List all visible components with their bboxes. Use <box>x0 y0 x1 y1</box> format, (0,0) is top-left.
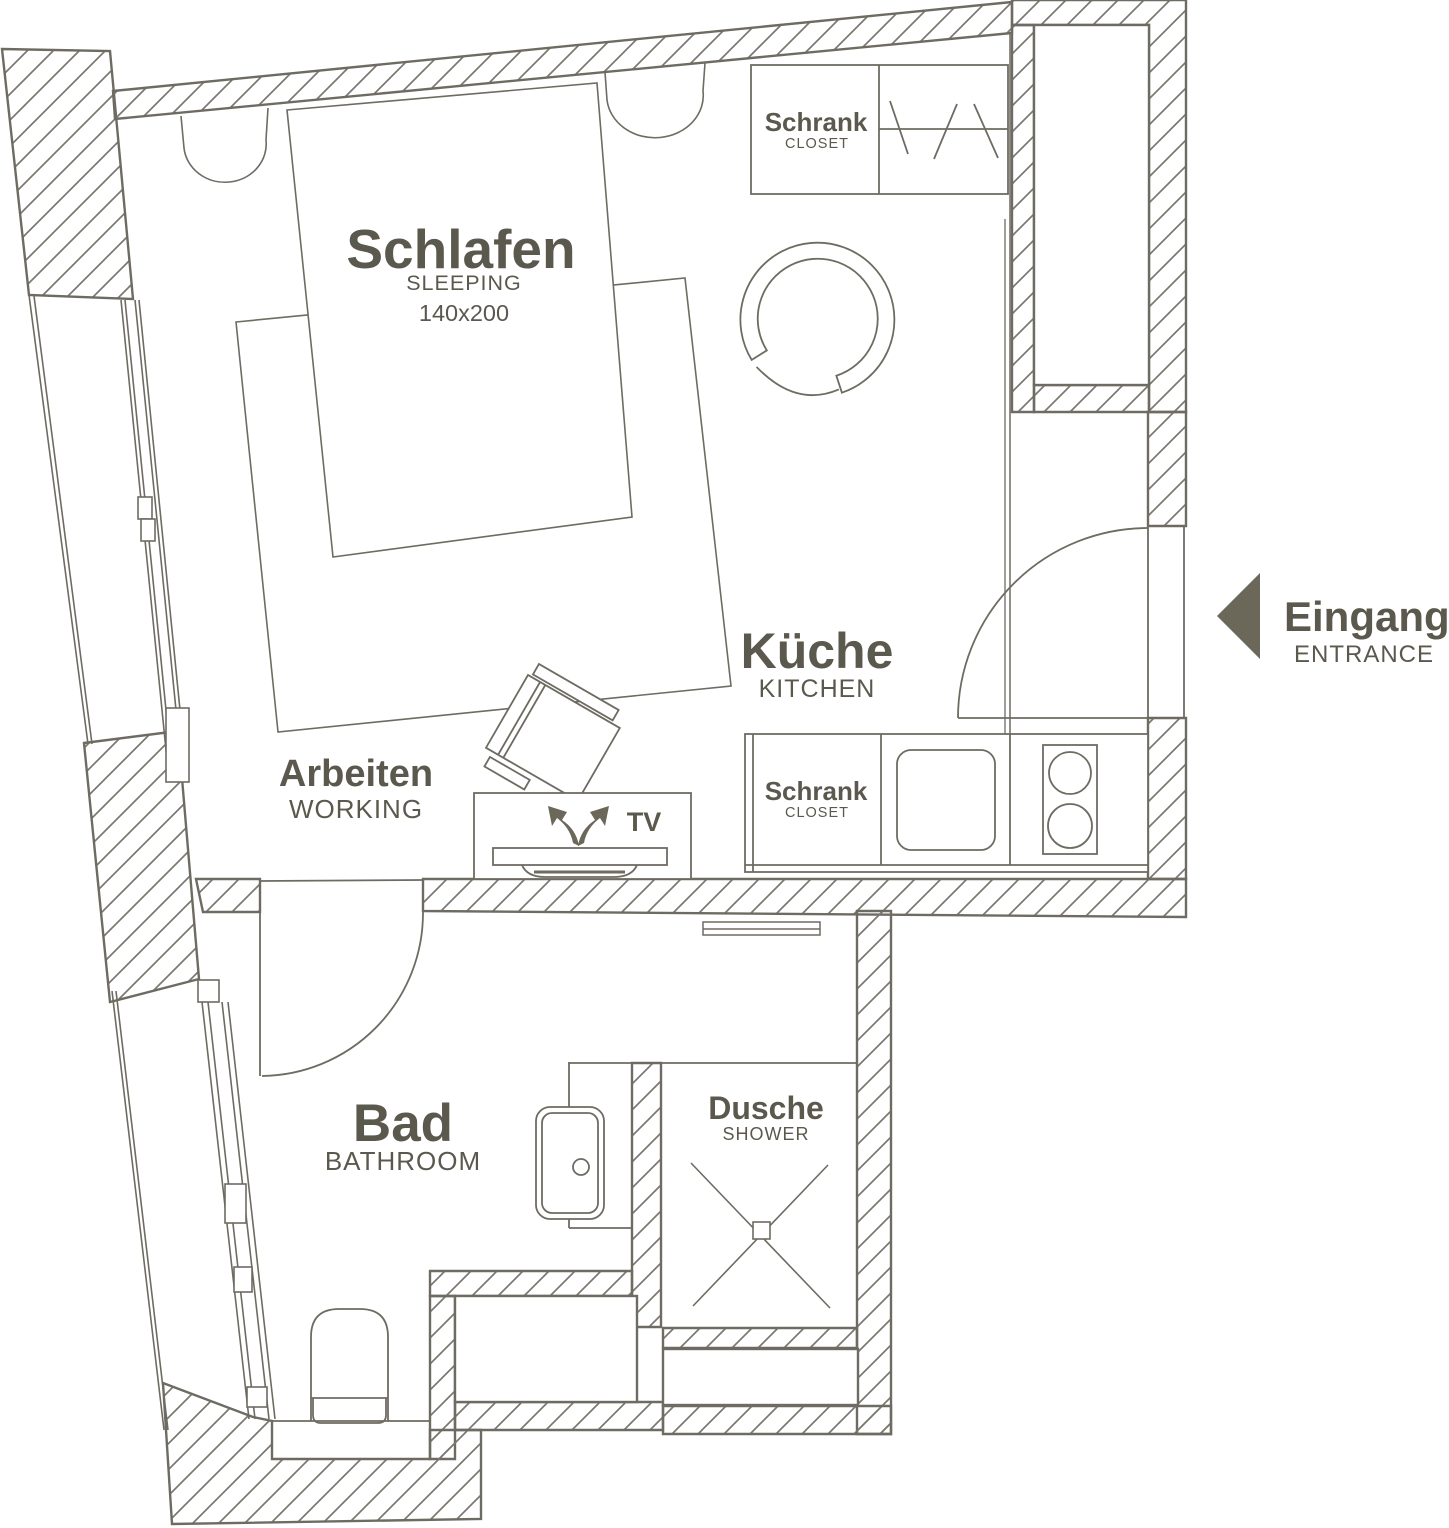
svg-text:Küche: Küche <box>741 623 894 679</box>
svg-text:CLOSET: CLOSET <box>785 136 849 152</box>
svg-text:Schrank: Schrank <box>765 776 868 806</box>
svg-text:Eingang: Eingang <box>1284 593 1449 640</box>
svg-text:140x200: 140x200 <box>419 300 509 326</box>
svg-text:CLOSET: CLOSET <box>785 805 849 821</box>
svg-text:SHOWER: SHOWER <box>723 1124 810 1144</box>
svg-text:SLEEPING: SLEEPING <box>406 271 522 295</box>
svg-text:ENTRANCE: ENTRANCE <box>1294 641 1434 668</box>
svg-text:TV: TV <box>627 807 662 837</box>
svg-text:Dusche: Dusche <box>708 1090 824 1126</box>
svg-text:KITCHEN: KITCHEN <box>759 675 876 703</box>
svg-text:Schrank: Schrank <box>765 107 868 137</box>
svg-text:Bad: Bad <box>353 1094 453 1153</box>
svg-text:BATHROOM: BATHROOM <box>325 1146 481 1176</box>
svg-text:Arbeiten: Arbeiten <box>279 753 433 795</box>
svg-text:WORKING: WORKING <box>289 794 423 824</box>
